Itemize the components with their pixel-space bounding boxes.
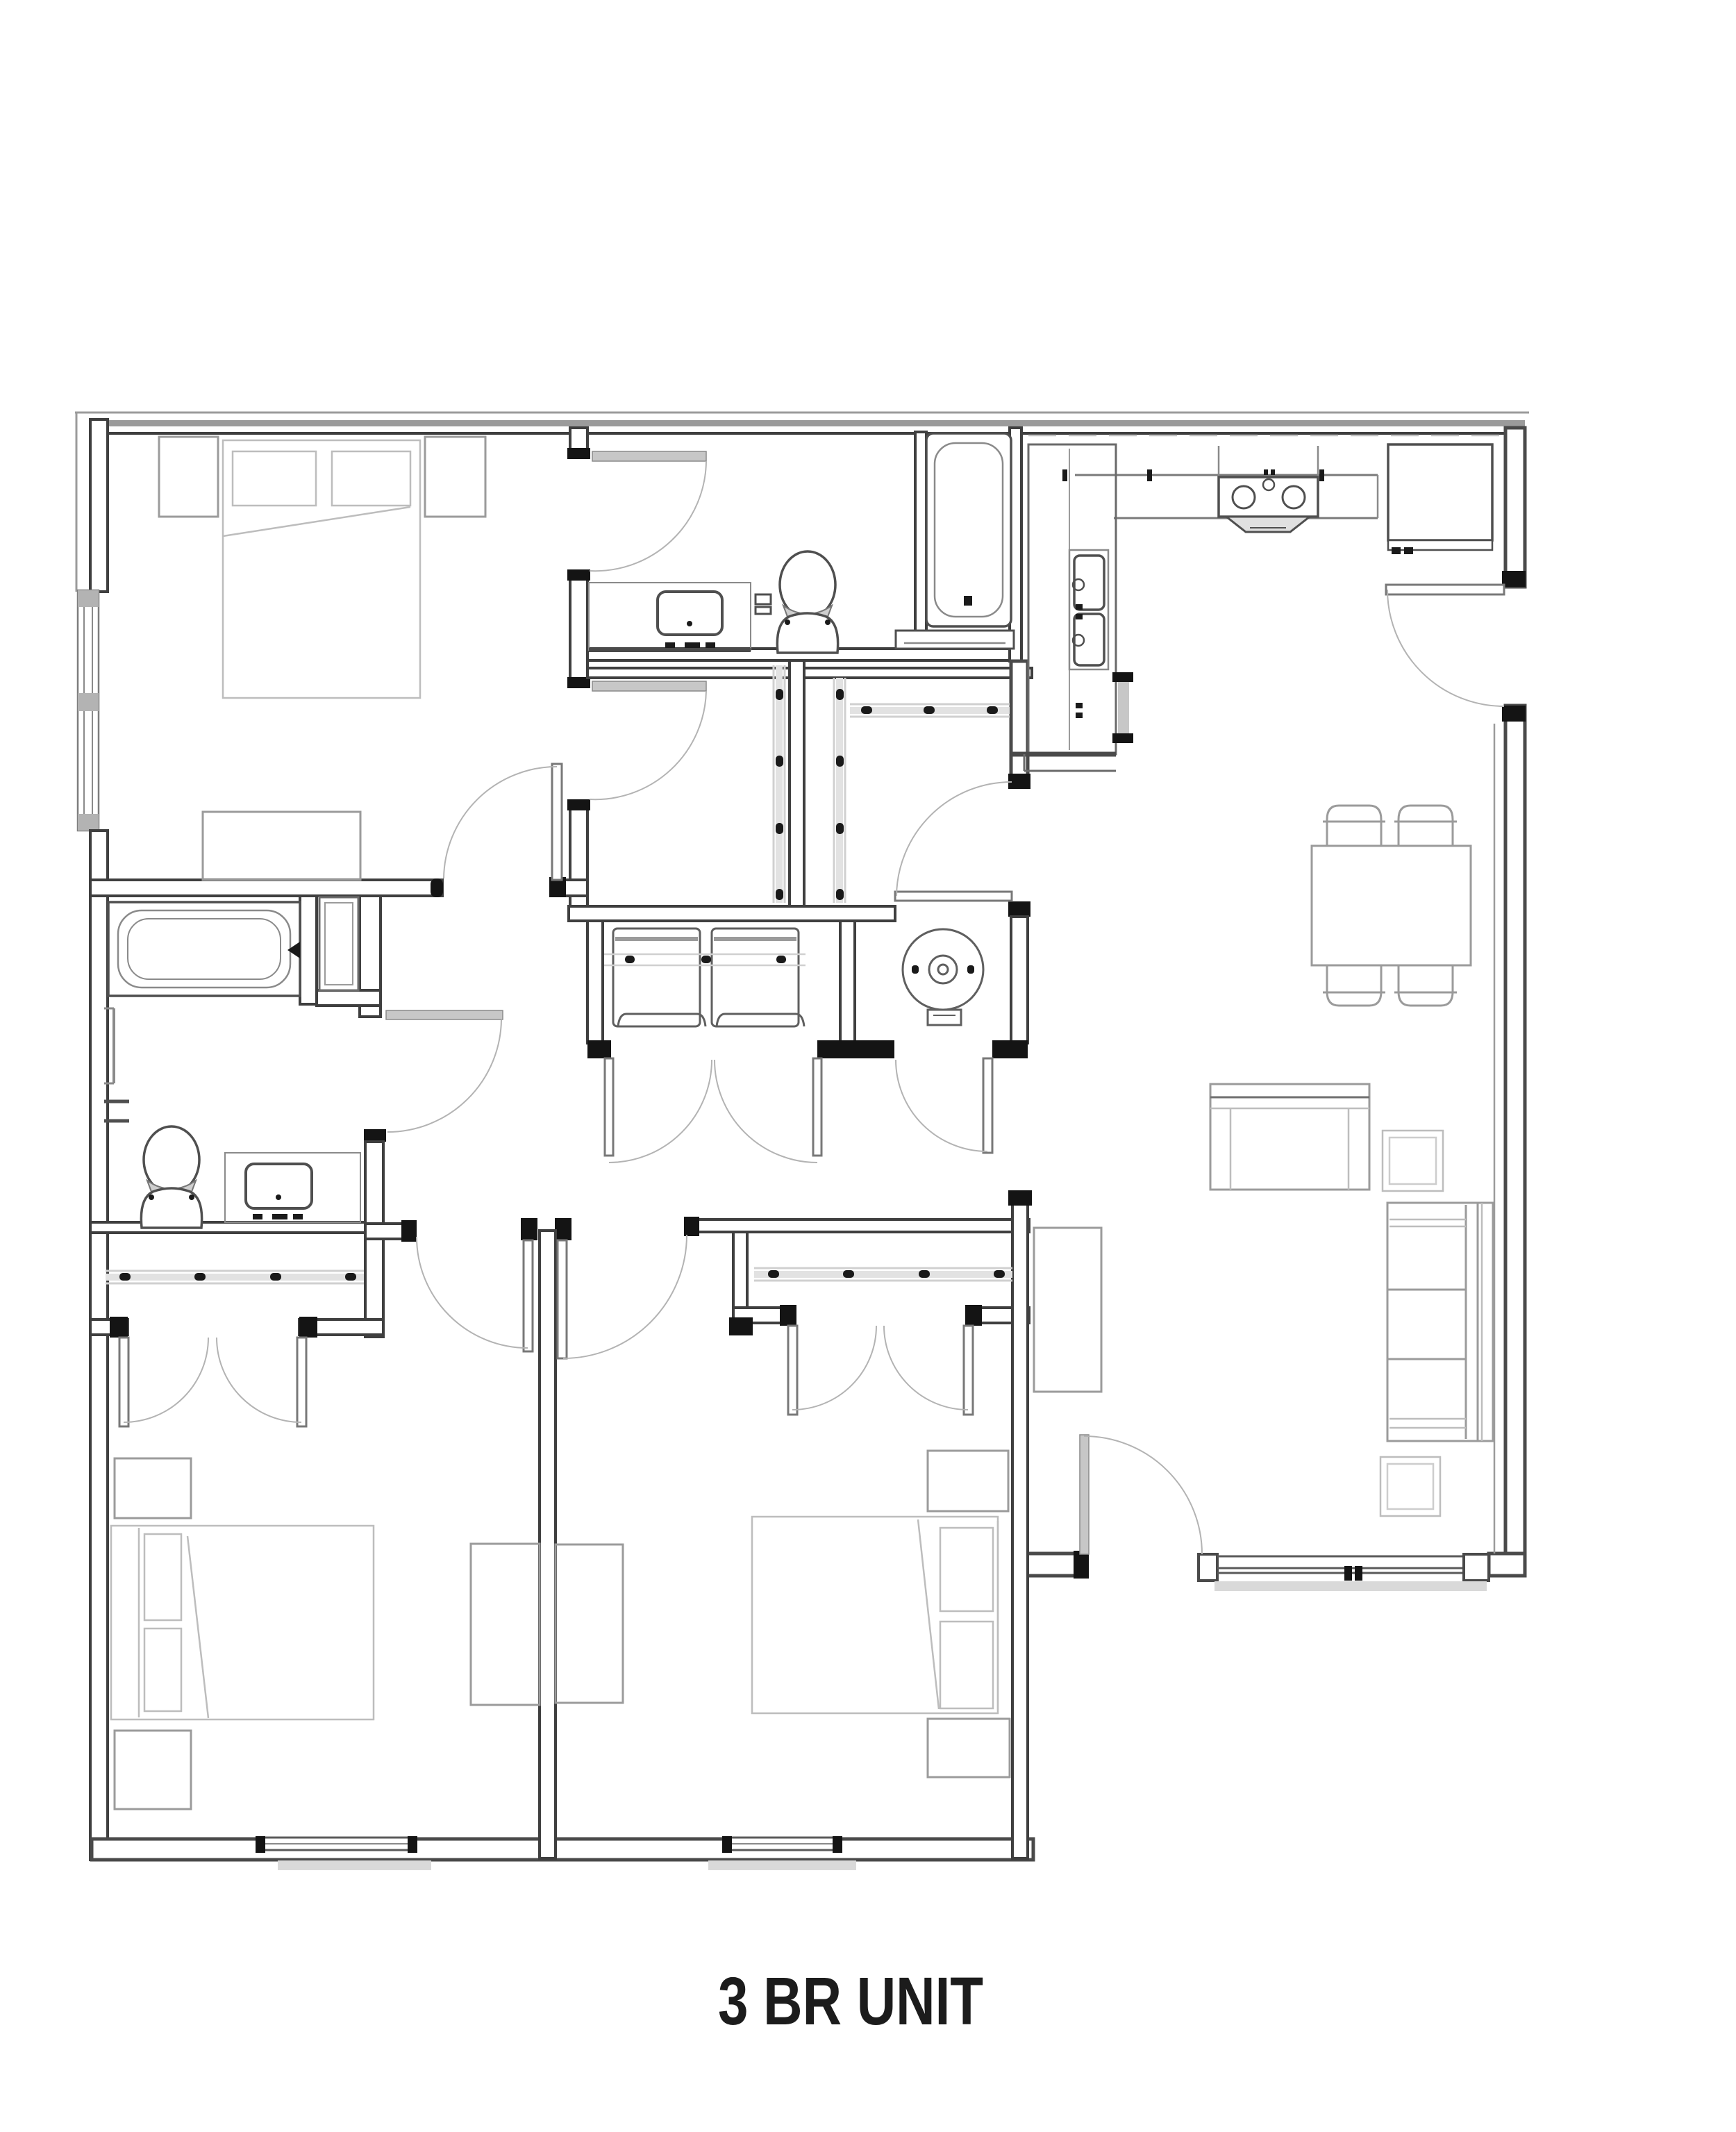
svg-text:3 BR UNIT: 3 BR UNIT — [718, 1963, 983, 2039]
